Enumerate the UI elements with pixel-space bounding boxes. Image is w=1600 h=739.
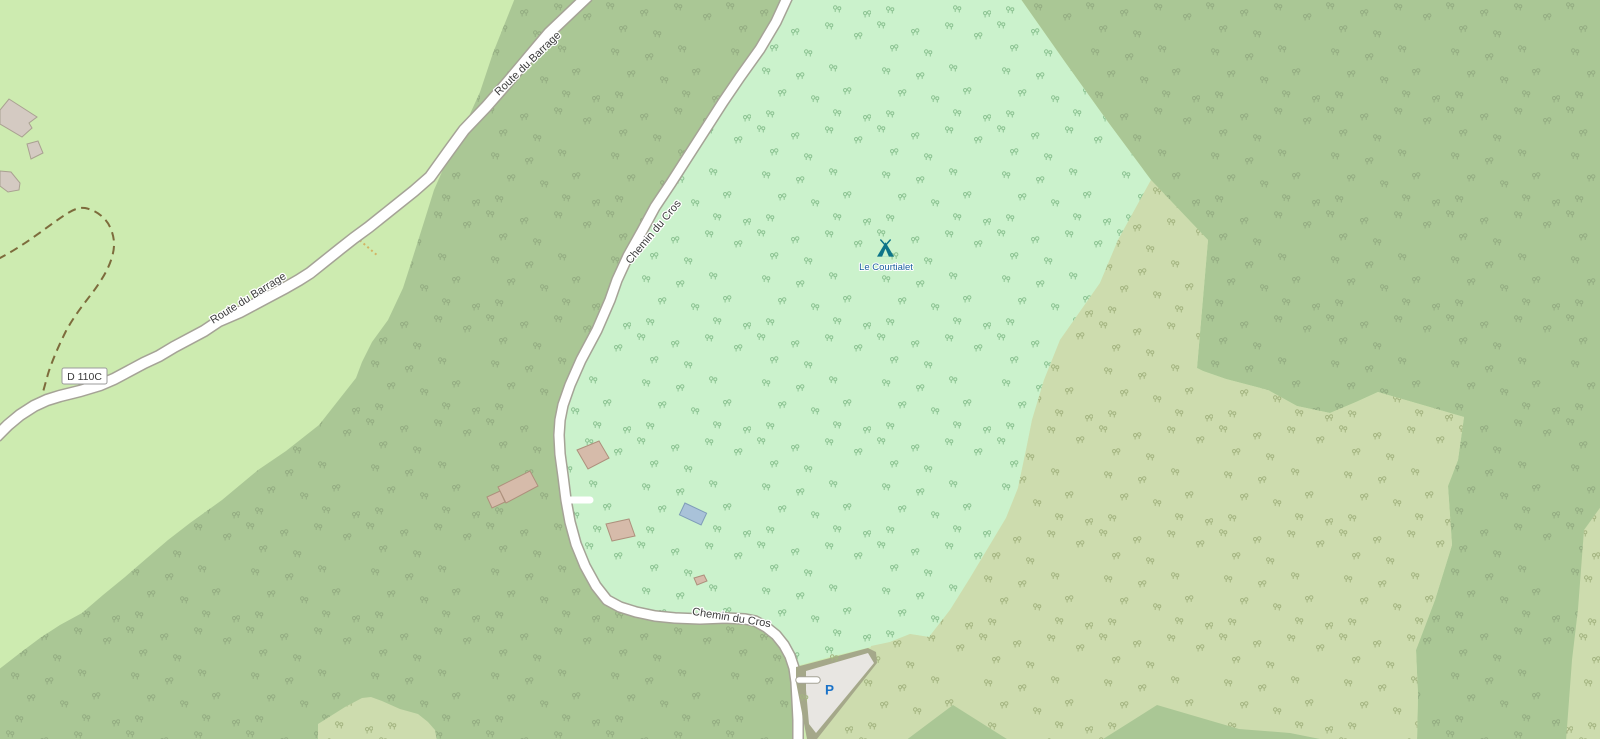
svg-text:D 110C: D 110C [67, 371, 102, 383]
svg-text:Le Courtialet: Le Courtialet [859, 262, 913, 273]
svg-text:P: P [825, 683, 834, 698]
